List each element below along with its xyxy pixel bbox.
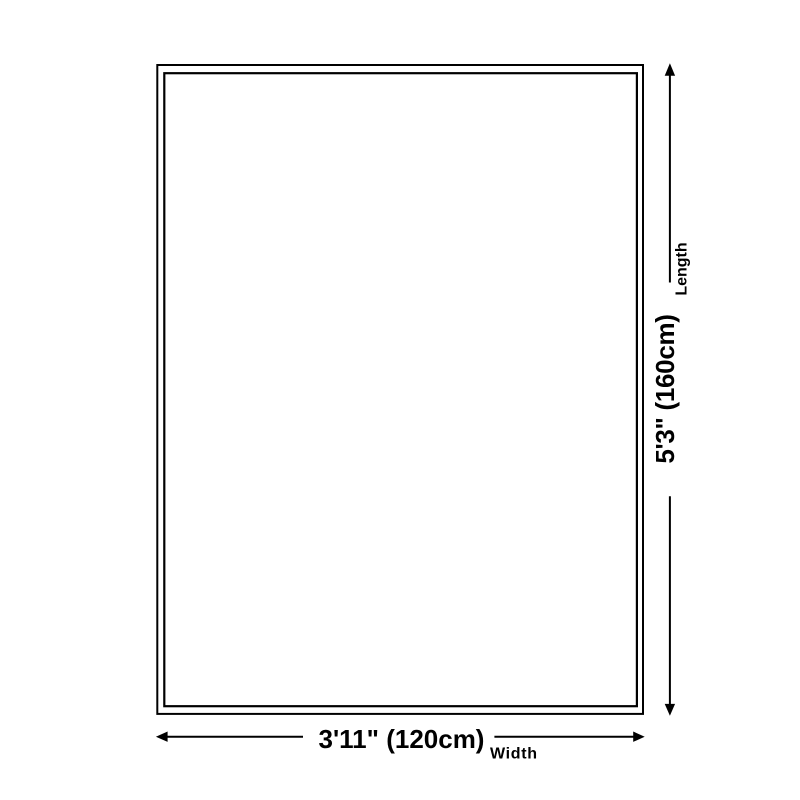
svg-text:5'3" (160cm): 5'3" (160cm) <box>650 314 680 463</box>
svg-text:3'11" (120cm): 3'11" (120cm) <box>319 724 485 754</box>
svg-text:Width: Width <box>490 746 538 763</box>
svg-text:Length: Length <box>673 242 690 295</box>
